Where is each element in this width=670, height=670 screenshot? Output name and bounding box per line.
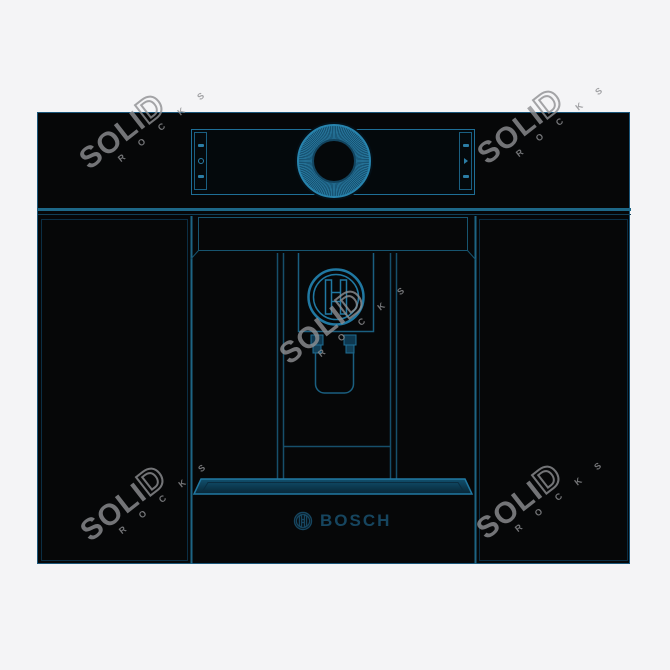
coffee-machine: BOSCH (37, 112, 630, 564)
rotary-knob-center (312, 139, 356, 183)
bosch-symbol (309, 270, 364, 325)
right-door-outline (480, 220, 628, 561)
dispenser-housing (278, 253, 397, 479)
dial-icon (198, 158, 204, 164)
left-button-strip (194, 132, 207, 190)
right-button-strip (459, 132, 472, 190)
start-icon (464, 158, 468, 164)
recess-bevels (191, 251, 476, 260)
cup-small-icon (198, 144, 204, 147)
brand-logo: BOSCH (293, 510, 391, 532)
brand-wordmark: BOSCH (320, 511, 391, 531)
spout-body (316, 353, 354, 393)
bosch-symbol-small (293, 511, 313, 531)
cup-large-icon (198, 175, 204, 178)
spout-nozzles (311, 335, 356, 353)
rotary-knob (297, 124, 371, 198)
volume-icon (463, 175, 469, 178)
left-door-outline (42, 220, 188, 561)
strength-icon (463, 144, 469, 147)
product-render: BOSCH SOLID R O C K S SOLID R O C K S SO… (0, 0, 670, 670)
drip-tray (194, 479, 472, 494)
cup-shelf-recess (199, 218, 468, 251)
